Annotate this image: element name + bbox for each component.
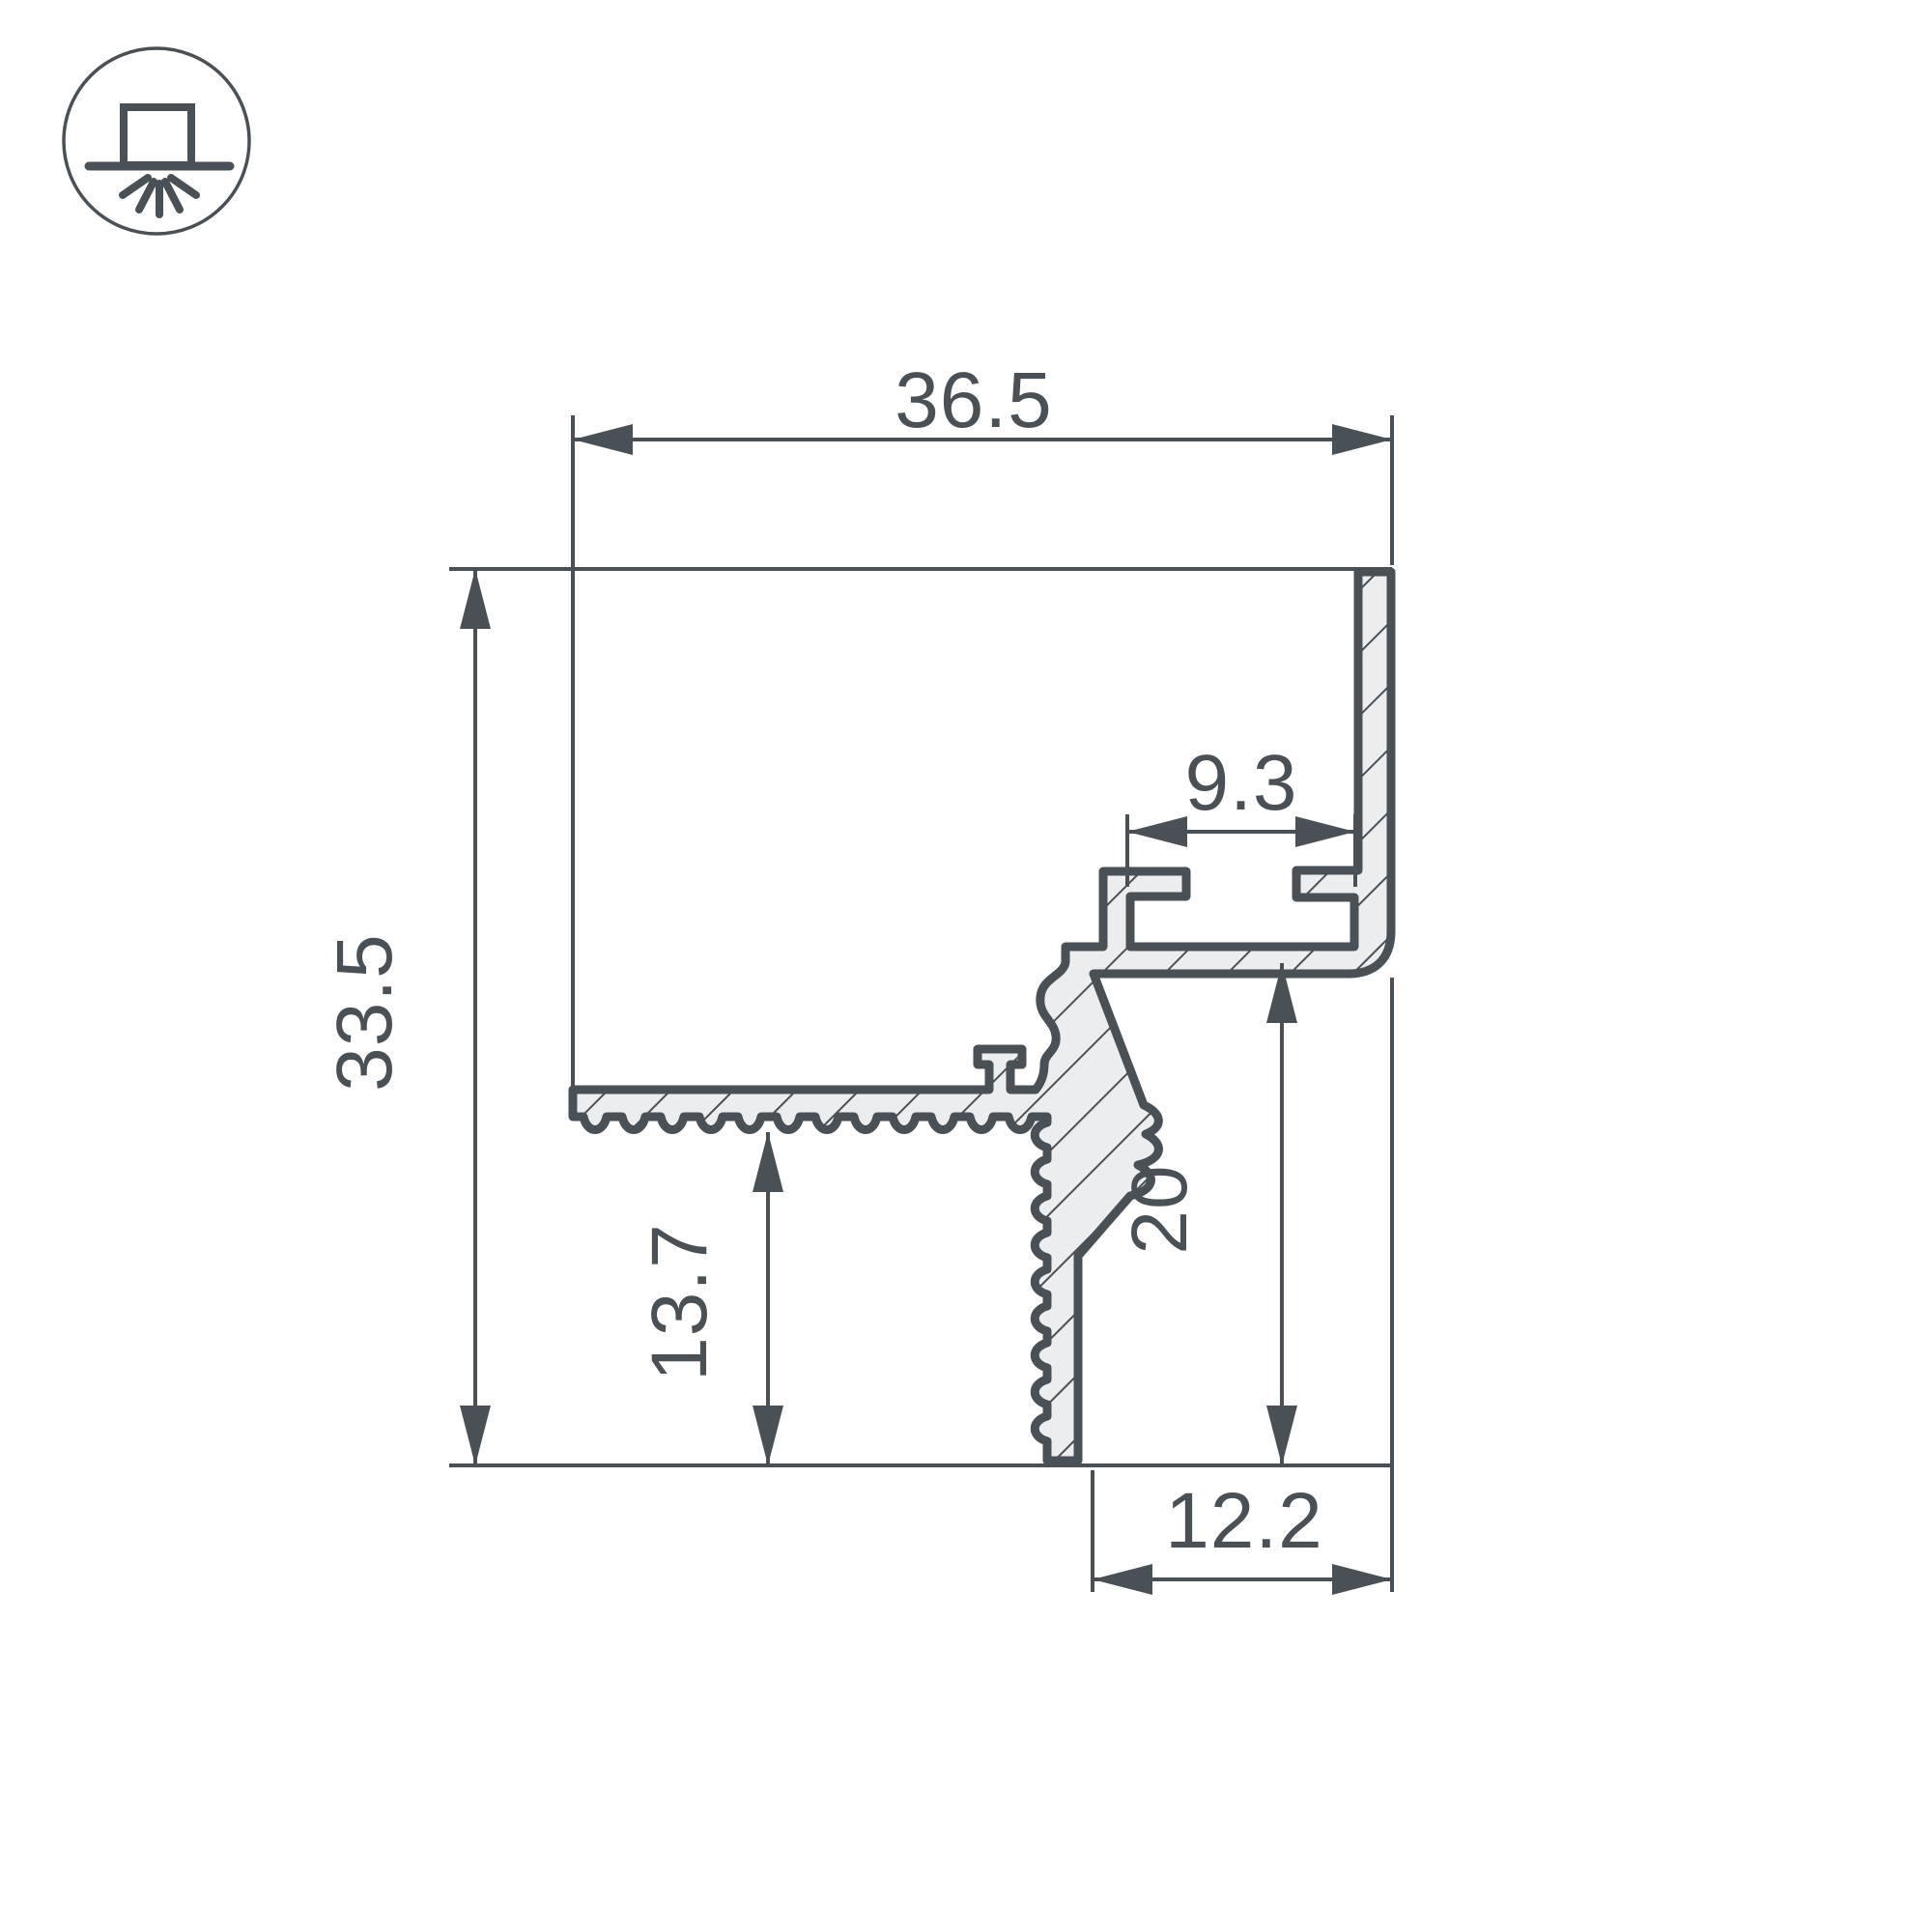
arrowhead-bottom — [753, 1406, 783, 1465]
arrowhead-right — [1295, 816, 1355, 847]
dim-label-flange-height: 13.7 — [636, 1223, 724, 1381]
drawing-page: 36.5 33.5 9.3 13.7 20 12.2 — [0, 0, 1932, 1932]
arrowhead-bottom — [1266, 1406, 1297, 1465]
arrowhead-bottom — [460, 1406, 491, 1465]
arrowhead-right — [1332, 424, 1392, 455]
dim-label-top-width: 36.5 — [895, 356, 1053, 444]
arrowhead-top — [460, 569, 491, 629]
arrowhead-left — [1093, 1564, 1152, 1595]
dim-label-overall-height: 33.5 — [321, 933, 409, 1092]
arrowhead-top — [753, 1132, 783, 1192]
dim-label-bottom-width: 12.2 — [1165, 1477, 1323, 1565]
recessed-ceiling-light-icon — [64, 48, 249, 234]
dimension-flange-height: 13.7 — [636, 1132, 783, 1465]
dim-label-right-height: 20 — [1116, 1164, 1204, 1254]
extension-lines — [449, 415, 1393, 1592]
dimension-slot-width: 9.3 — [1127, 739, 1355, 847]
profile-cross-section-drawing: 36.5 33.5 9.3 13.7 20 12.2 — [0, 0, 1932, 1932]
dimension-bottom-width: 12.2 — [1093, 1477, 1392, 1595]
dimension-overall-height: 33.5 — [321, 569, 491, 1465]
dimension-top-width: 36.5 — [573, 356, 1392, 455]
arrowhead-left — [573, 424, 633, 455]
dim-label-slot-width: 9.3 — [1185, 739, 1298, 827]
arrowhead-right — [1332, 1564, 1392, 1595]
dimension-right-height: 20 — [1116, 963, 1297, 1465]
arrowhead-left — [1127, 816, 1187, 847]
